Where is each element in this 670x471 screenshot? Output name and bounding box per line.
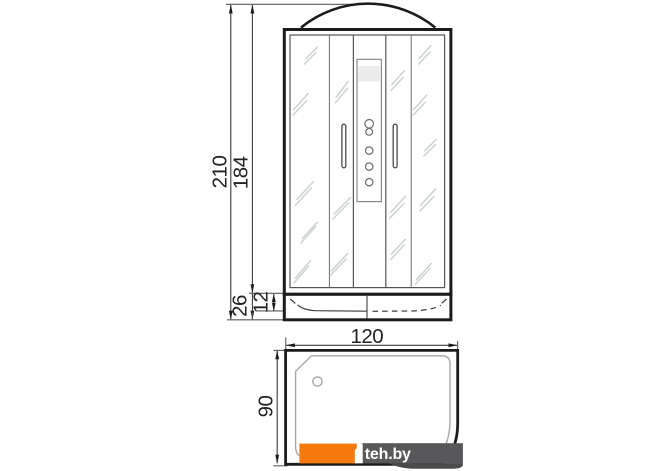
svg-text:184: 184 bbox=[230, 156, 253, 189]
svg-text:26: 26 bbox=[229, 295, 252, 317]
svg-text:12: 12 bbox=[250, 292, 273, 314]
svg-text:210: 210 bbox=[209, 156, 232, 189]
svg-text:90: 90 bbox=[255, 396, 278, 418]
svg-text:120: 120 bbox=[350, 325, 383, 348]
svg-text:teh.by: teh.by bbox=[365, 446, 411, 463]
